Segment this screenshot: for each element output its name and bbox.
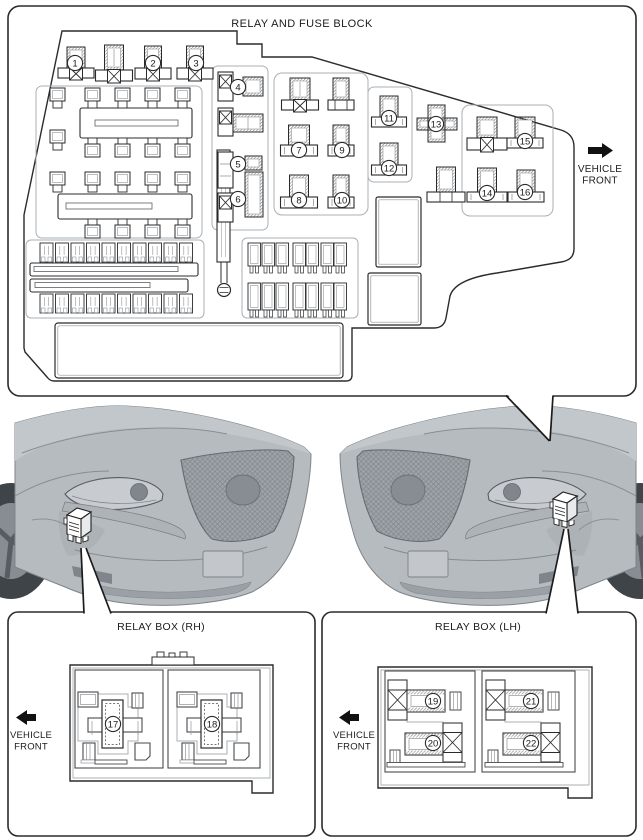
callout-3: 3 xyxy=(188,55,203,70)
svg-text:3: 3 xyxy=(193,58,198,69)
relay-box-rh-title: RELAY BOX (RH) xyxy=(117,621,205,633)
svg-text:20: 20 xyxy=(428,738,439,749)
svg-text:1: 1 xyxy=(72,58,77,69)
svg-text:14: 14 xyxy=(482,188,493,199)
svg-text:6: 6 xyxy=(235,194,240,205)
fuse-block-panel: RELAY AND FUSE BLOCK VEHICLEFRONT 123456… xyxy=(8,6,636,396)
callout-11: 11 xyxy=(381,110,396,125)
callout-16: 16 xyxy=(517,184,532,199)
service-manual-page: RELAY AND FUSE BLOCK VEHICLEFRONT 123456… xyxy=(0,0,643,840)
callout-19: 19 xyxy=(425,693,440,708)
fuse-relay-location-diagram: RELAY AND FUSE BLOCK VEHICLEFRONT 123456… xyxy=(0,0,643,840)
svg-text:15: 15 xyxy=(520,136,531,147)
svg-text:9: 9 xyxy=(339,145,344,156)
svg-text:18: 18 xyxy=(207,719,218,730)
relay-box-lh-diagram xyxy=(378,667,592,798)
relay-box-lh-title: RELAY BOX (LH) xyxy=(435,621,521,633)
callout-10: 10 xyxy=(334,192,349,207)
callout-5: 5 xyxy=(230,156,245,171)
vehicle-front-label-lh: VEHICLEFRONT xyxy=(333,730,375,753)
svg-text:13: 13 xyxy=(431,119,442,130)
svg-text:21: 21 xyxy=(526,696,537,707)
callout-1: 1 xyxy=(67,55,82,70)
svg-text:16: 16 xyxy=(520,187,531,198)
callout-7: 7 xyxy=(291,142,306,157)
callout-9: 9 xyxy=(334,142,349,157)
callout-20: 20 xyxy=(425,735,440,750)
svg-text:17: 17 xyxy=(108,719,119,730)
svg-text:4: 4 xyxy=(235,82,240,93)
vehicle-front-label-top: VEHICLEFRONT xyxy=(578,164,622,187)
car-illustration-right xyxy=(340,406,643,605)
callout-22: 22 xyxy=(523,735,538,750)
svg-text:8: 8 xyxy=(296,195,301,206)
callout-13: 13 xyxy=(428,116,443,131)
fuse-block-title: RELAY AND FUSE BLOCK xyxy=(231,18,373,30)
relay-box-rh-panel: RELAY BOX (RH) VEHICLEFRONT 1718 xyxy=(8,612,315,836)
callout-6: 6 xyxy=(230,191,245,206)
car-illustration-left xyxy=(0,406,311,605)
callout-14: 14 xyxy=(479,185,494,200)
callout-8: 8 xyxy=(291,192,306,207)
callout-2: 2 xyxy=(145,55,160,70)
svg-text:19: 19 xyxy=(428,696,439,707)
relay-box-lh-panel: RELAY BOX (LH) VEHICLEFRONT 19202122 xyxy=(322,612,636,836)
callout-18: 18 xyxy=(204,716,219,731)
svg-text:11: 11 xyxy=(384,113,394,124)
vehicle-front-label-rh: VEHICLEFRONT xyxy=(10,730,52,753)
relay-box-rh-diagram xyxy=(70,652,273,793)
svg-text:7: 7 xyxy=(296,145,301,156)
svg-text:12: 12 xyxy=(384,163,395,174)
svg-text:10: 10 xyxy=(337,195,348,206)
svg-text:2: 2 xyxy=(150,58,155,69)
callout-21: 21 xyxy=(523,693,538,708)
callout-15: 15 xyxy=(517,133,532,148)
callout-4: 4 xyxy=(230,79,245,94)
callout-12: 12 xyxy=(381,160,396,175)
svg-text:5: 5 xyxy=(235,159,240,170)
svg-text:22: 22 xyxy=(526,738,537,749)
callout-17: 17 xyxy=(105,716,120,731)
